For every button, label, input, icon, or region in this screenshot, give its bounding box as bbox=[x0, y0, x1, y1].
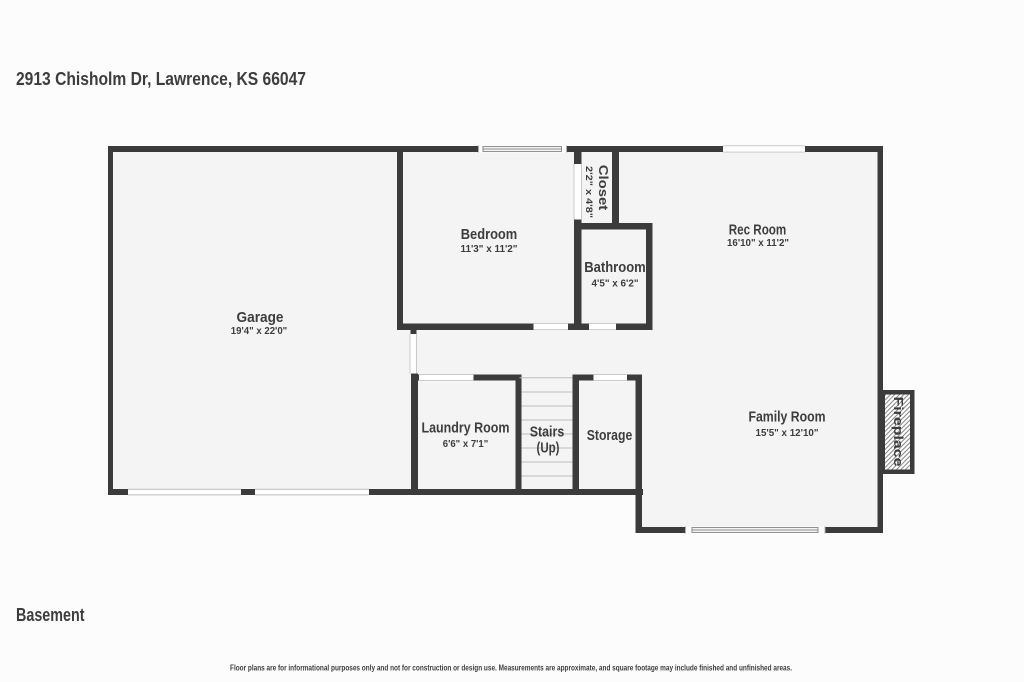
svg-text:2'2" x 4'8": 2'2" x 4'8" bbox=[584, 166, 594, 218]
svg-text:6'6" x 7'1": 6'6" x 7'1" bbox=[443, 438, 489, 450]
svg-text:2913 Chisholm Dr, Lawrence, KS: 2913 Chisholm Dr, Lawrence, KS 66047 bbox=[16, 69, 306, 89]
svg-text:Fireplace: Fireplace bbox=[891, 397, 905, 467]
svg-text:11'3" x 11'2": 11'3" x 11'2" bbox=[461, 243, 518, 255]
svg-text:15'5" x 12'10": 15'5" x 12'10" bbox=[756, 427, 819, 439]
svg-text:Basement: Basement bbox=[16, 605, 85, 625]
svg-text:Floor plans are for informatio: Floor plans are for informational purpos… bbox=[230, 664, 792, 673]
svg-text:Storage: Storage bbox=[587, 427, 633, 444]
svg-text:Closet: Closet bbox=[596, 165, 610, 211]
svg-text:Garage: Garage bbox=[237, 309, 284, 326]
svg-text:16'10" x 11'2": 16'10" x 11'2" bbox=[727, 237, 789, 249]
svg-text:Laundry Room: Laundry Room bbox=[422, 420, 510, 437]
svg-text:Bathroom: Bathroom bbox=[584, 259, 646, 276]
svg-text:4'5" x 6'2": 4'5" x 6'2" bbox=[592, 278, 639, 290]
svg-text:Family Room: Family Room bbox=[749, 409, 826, 426]
svg-text:Bedroom: Bedroom bbox=[461, 226, 518, 243]
svg-text:Rec Room: Rec Room bbox=[729, 222, 787, 239]
svg-text:Stairs: Stairs bbox=[530, 424, 565, 441]
svg-text:19'4" x 22'0": 19'4" x 22'0" bbox=[231, 325, 288, 337]
svg-text:(Up): (Up) bbox=[537, 440, 560, 457]
